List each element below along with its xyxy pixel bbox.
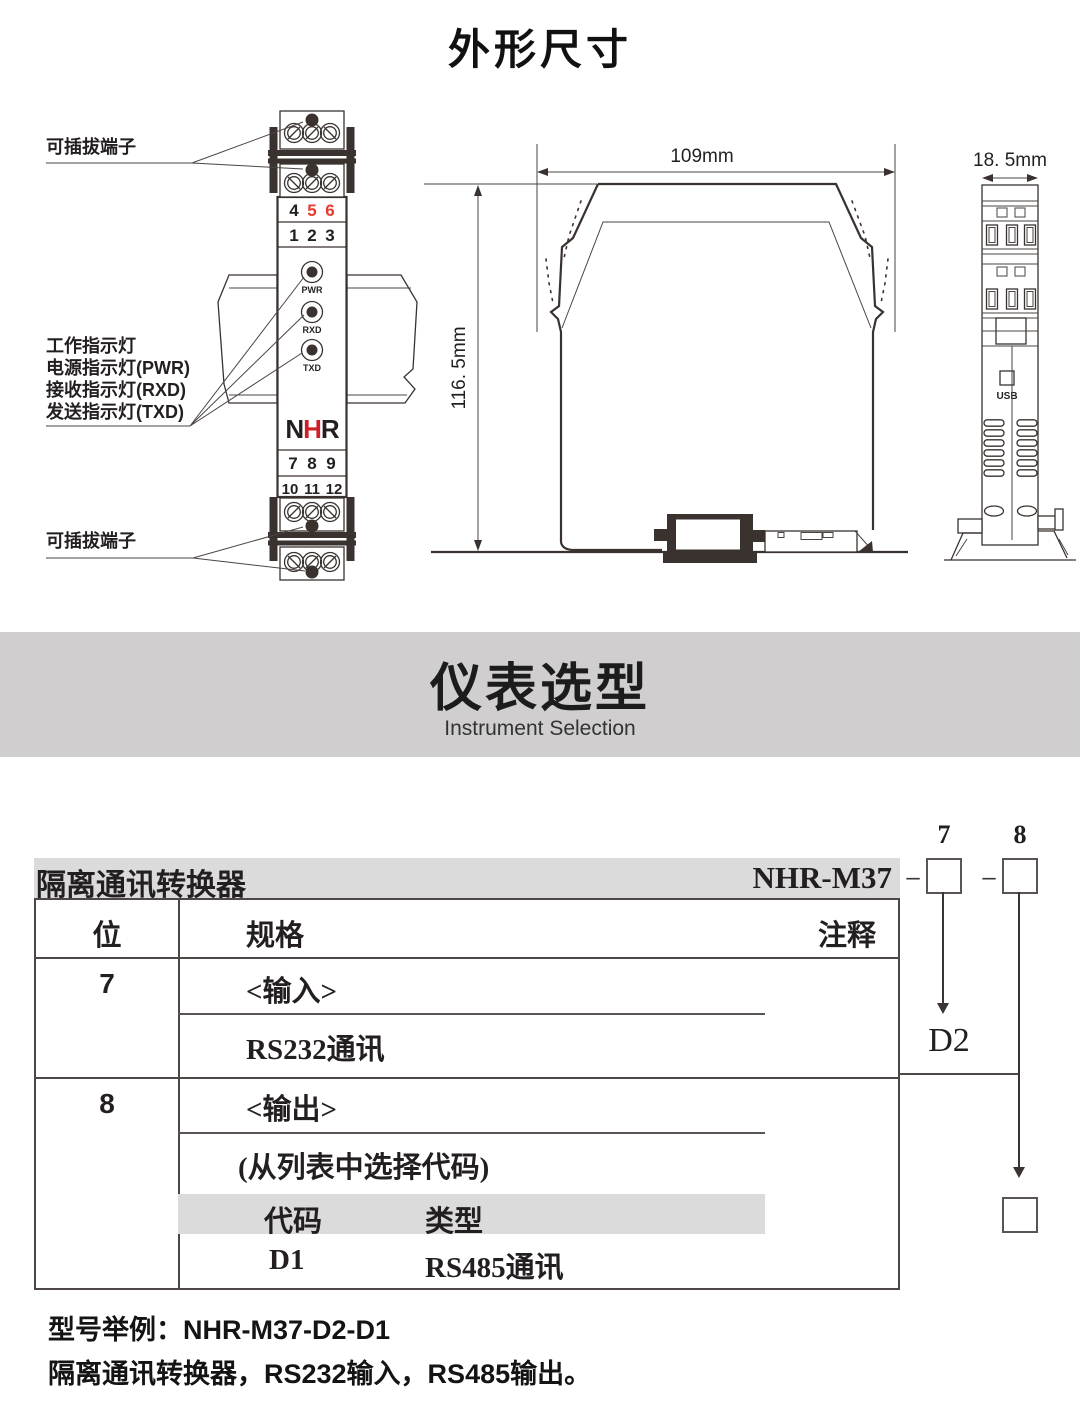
svg-text:7: 7 xyxy=(288,454,297,473)
height-dimension: 116. 5mm xyxy=(449,185,482,551)
code-box-8-target xyxy=(1002,1197,1038,1233)
terminal-block-bottom xyxy=(268,497,356,580)
svg-text:电源指示灯(PWR): 电源指示灯(PWR) xyxy=(46,357,190,378)
example-line-1: 型号举例：NHR-M37-D2-D1 xyxy=(48,1308,390,1347)
example-line-2: 隔离通讯转换器，RS232输入，RS485输出。 xyxy=(48,1352,591,1391)
row-divider xyxy=(36,1077,898,1079)
svg-text:6: 6 xyxy=(325,201,334,220)
position-digit-7: 7 xyxy=(926,820,962,850)
profile-body xyxy=(982,185,1038,545)
inner-line-1 xyxy=(178,1013,765,1015)
led-label-pwr: PWR xyxy=(302,285,323,295)
code-header: 代码 xyxy=(264,1198,322,1240)
svg-text:109mm: 109mm xyxy=(670,146,733,167)
profile-view: 18. 5mm xyxy=(944,150,1076,560)
position-digit-8: 8 xyxy=(1002,820,1038,850)
terminal-block-top xyxy=(268,111,356,197)
header-position: 位 xyxy=(36,912,178,954)
header-divider xyxy=(36,957,898,959)
svg-text:发送指示灯(TXD): 发送指示灯(TXD) xyxy=(45,401,184,422)
svg-text:可插拔端子: 可插拔端子 xyxy=(46,530,136,551)
svg-text:3: 3 xyxy=(325,226,334,245)
module-outline-right xyxy=(598,184,883,530)
svg-text:10: 10 xyxy=(282,481,299,498)
profile-width-dimension: 18. 5mm xyxy=(973,150,1047,182)
led-label-txd: TXD xyxy=(303,363,322,373)
note-d2: D2 xyxy=(918,1022,980,1060)
module-inner-line xyxy=(562,222,871,328)
arrow-8-head xyxy=(1013,1167,1025,1178)
usb-label: USB xyxy=(996,391,1017,402)
callout-pluggable-top: 可插拔端子 xyxy=(46,122,303,169)
dimension-drawing: 4 5 6 1 2 3 PWR RXD TXD NHR xyxy=(0,0,1080,612)
code-box-7 xyxy=(926,858,962,894)
row8-spec-title: <输出> xyxy=(246,1086,337,1128)
row-divider-extension xyxy=(900,1073,1020,1075)
dash-1: – xyxy=(901,858,925,898)
svg-text:12: 12 xyxy=(326,481,343,498)
svg-text:11: 11 xyxy=(304,481,320,498)
side-view: 116. 5mm 109mm xyxy=(424,144,908,563)
row7-spec-value: RS232通讯 xyxy=(246,1026,385,1068)
svg-text:5: 5 xyxy=(307,201,316,220)
row7-position: 7 xyxy=(36,968,178,1000)
svg-text:2: 2 xyxy=(307,226,316,245)
model-bar: 隔离通讯转换器 NHR-M37 xyxy=(34,858,900,898)
row7-spec-title: <输入> xyxy=(246,968,337,1010)
row8-position: 8 xyxy=(36,1088,178,1120)
svg-text:4: 4 xyxy=(289,201,299,220)
nhr-logo: NHR xyxy=(285,414,340,444)
datasheet-page: 外形尺寸 xyxy=(0,0,1080,1402)
arrow-7-head xyxy=(937,1003,949,1014)
svg-text:8: 8 xyxy=(307,454,316,473)
banner-subtitle: Instrument Selection xyxy=(0,717,1080,741)
code-value: D1 xyxy=(269,1244,304,1277)
arrow-8-line xyxy=(1018,892,1020,1168)
code-box-8 xyxy=(1002,858,1038,894)
section-banner: 仪表选型 Instrument Selection xyxy=(0,632,1080,757)
width-dimension: 109mm xyxy=(537,144,895,332)
svg-text:1: 1 xyxy=(289,226,298,245)
dotted-guides xyxy=(546,201,888,303)
front-view: 4 5 6 1 2 3 PWR RXD TXD NHR xyxy=(45,111,417,580)
svg-text:可插拔端子: 可插拔端子 xyxy=(46,136,136,157)
model-number: NHR-M37 xyxy=(753,860,892,896)
type-value: RS485通讯 xyxy=(425,1244,564,1286)
selection-table: 位 规格 注释 7 <输入> RS232通讯 8 <输出> (从列表中选择代码)… xyxy=(34,898,900,1290)
din-clip xyxy=(654,514,765,563)
svg-text:接收指示灯(RXD): 接收指示灯(RXD) xyxy=(46,379,186,400)
banner-title: 仪表选型 xyxy=(0,646,1080,721)
header-note: 注释 xyxy=(636,912,876,954)
svg-text:18. 5mm: 18. 5mm xyxy=(973,150,1047,171)
svg-text:116. 5mm: 116. 5mm xyxy=(449,326,470,409)
callout-pluggable-bottom: 可插拔端子 xyxy=(46,527,305,571)
row8-spec-hint: (从列表中选择代码) xyxy=(238,1144,489,1186)
arrow-7-line xyxy=(942,892,944,1004)
header-spec: 规格 xyxy=(246,912,304,954)
svg-text:9: 9 xyxy=(326,454,335,473)
svg-text:工作指示灯: 工作指示灯 xyxy=(46,335,136,356)
led-label-rxd: RXD xyxy=(302,325,322,335)
din-latch xyxy=(765,531,880,552)
type-header: 类型 xyxy=(425,1198,483,1240)
dash-2: – xyxy=(977,858,1001,898)
inner-line-2 xyxy=(178,1132,765,1134)
